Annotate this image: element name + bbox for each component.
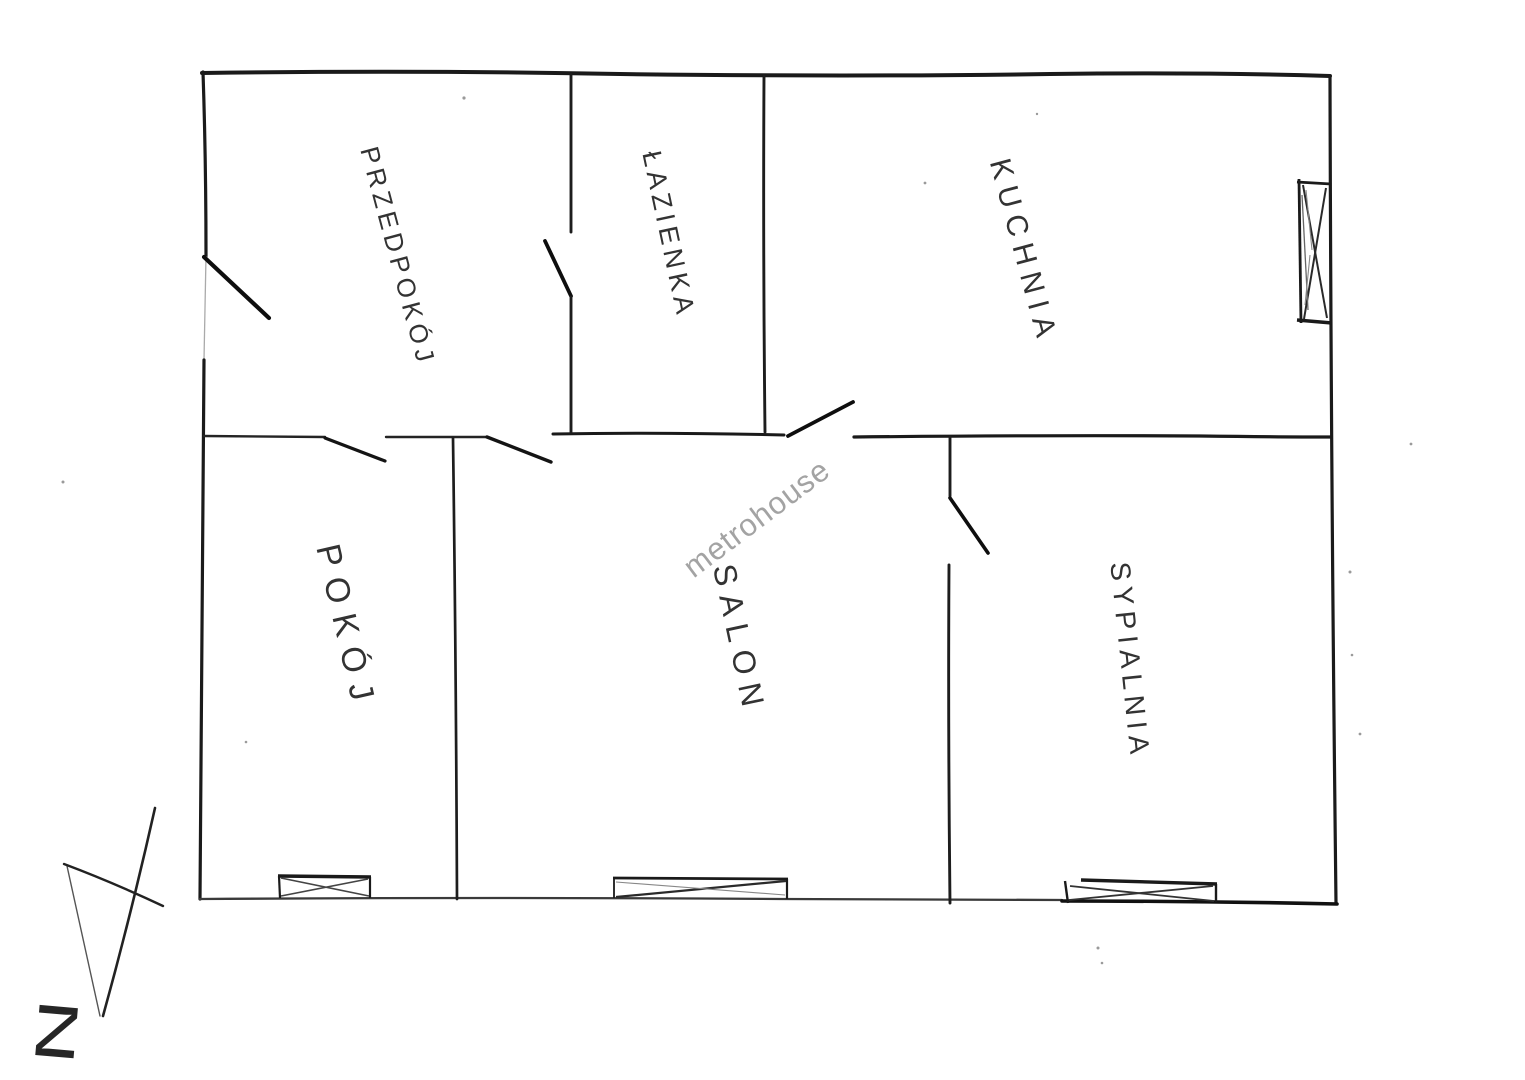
svg-text:N: N: [22, 997, 90, 1067]
